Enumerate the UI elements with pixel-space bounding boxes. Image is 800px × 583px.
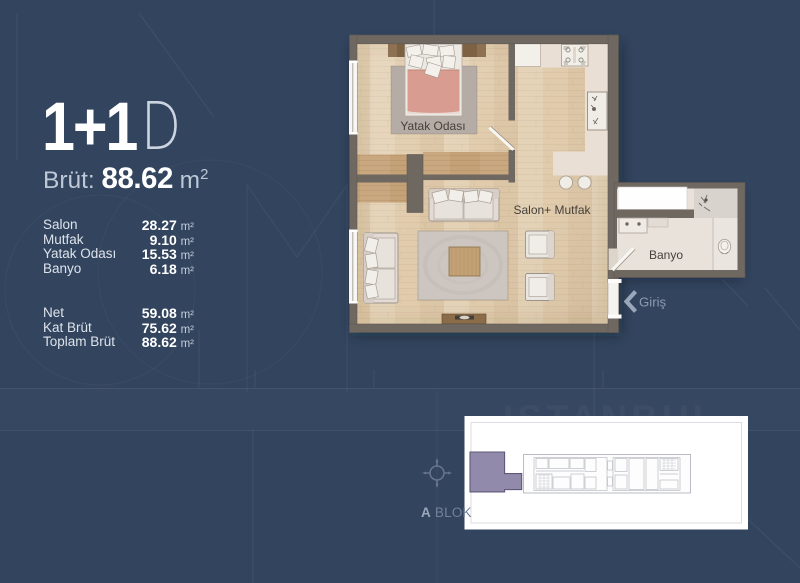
- svg-text:A BLOK: A BLOK: [421, 505, 472, 520]
